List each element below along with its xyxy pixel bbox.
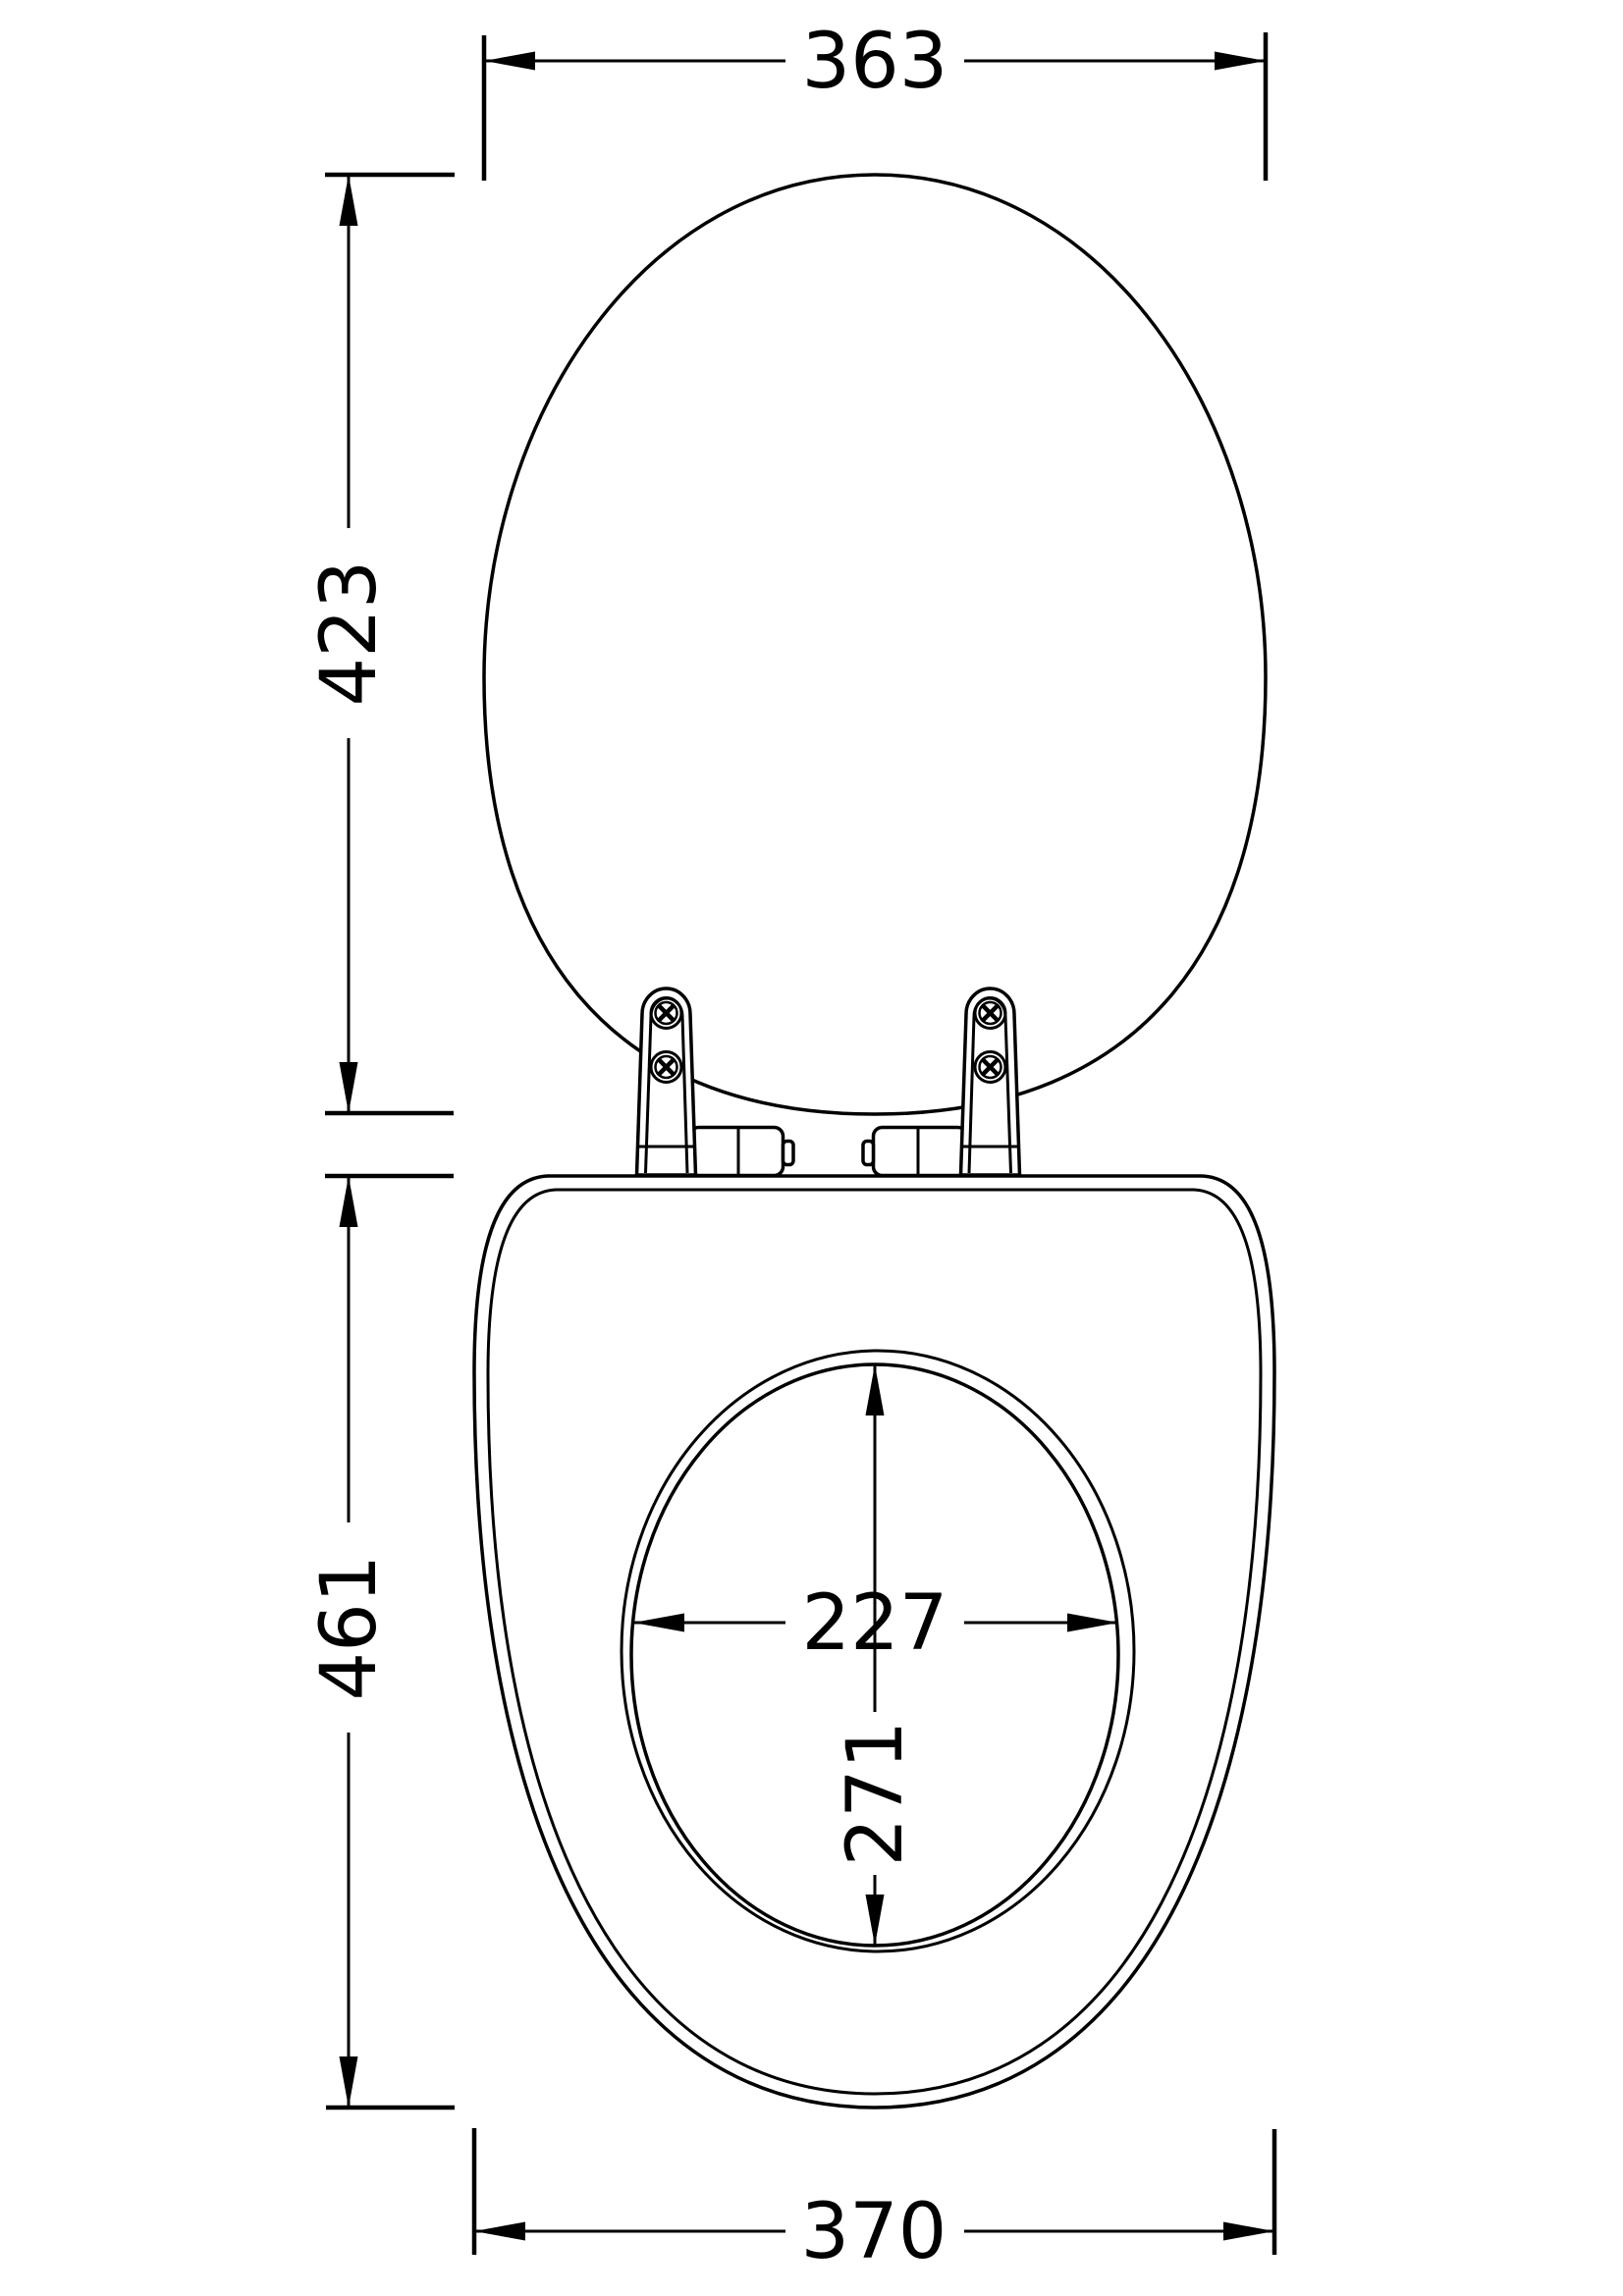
dim-label-seat-width: 370	[801, 2188, 947, 2276]
screw-icon	[651, 1052, 681, 1083]
screw-icon	[975, 1052, 1005, 1083]
lid	[484, 175, 1266, 1114]
arrowhead-up	[340, 175, 358, 226]
dimension-lid-height: 423	[305, 175, 455, 1113]
dim-label-seat-height: 461	[305, 1555, 394, 1701]
hinge-barrel-right	[874, 1128, 967, 1176]
arrowhead-down	[340, 2056, 358, 2108]
dim-label-lid-height: 423	[305, 561, 394, 707]
toilet-seat-dimension-drawing: 363 423 461 370	[0, 0, 1623, 2296]
arrowhead-left	[474, 2222, 525, 2241]
hinge-barrel-left-endcap	[784, 1142, 794, 1165]
screw-icon	[975, 998, 1005, 1029]
technical-drawing-canvas: 363 423 461 370	[0, 0, 1623, 2296]
dimension-lid-width: 363	[484, 18, 1266, 181]
lid-outline	[484, 175, 1266, 1114]
dim-label-opening-width: 227	[802, 1579, 948, 1668]
arrowhead-left	[484, 52, 535, 71]
dim-label-lid-width: 363	[802, 18, 948, 106]
hinge-barrel-left	[690, 1128, 784, 1176]
arrowhead-right	[1223, 2222, 1274, 2241]
dim-label-opening-height: 271	[832, 1721, 920, 1867]
dimension-seat-height: 461	[305, 1176, 455, 2108]
screw-icon	[651, 998, 681, 1029]
dimension-seat-width: 370	[474, 2128, 1274, 2276]
arrowhead-down	[340, 1062, 358, 1113]
arrowhead-up	[340, 1176, 358, 1227]
hinge-barrel-right-endcap	[863, 1142, 874, 1165]
arrowhead-right	[1215, 52, 1266, 71]
